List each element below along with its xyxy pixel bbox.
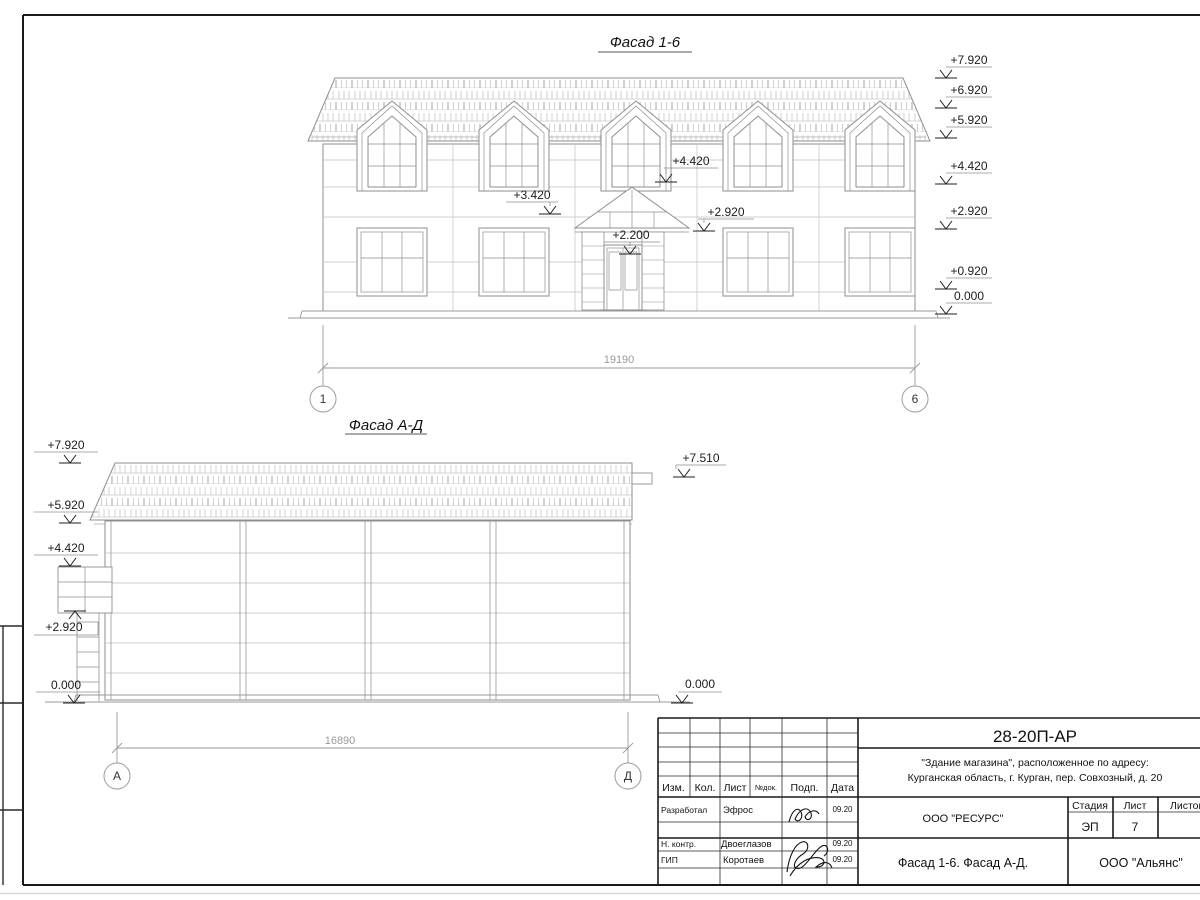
plinth-front [288,311,950,318]
portal-quoins-right [642,232,664,310]
org-customer: ООО "Альянс" [1099,856,1183,870]
elevation-mark: +0.920 [950,264,987,278]
sheets-label: Листов [1170,800,1200,812]
elevation-mark: +7.510 [682,451,719,465]
signature-scribble [789,809,819,822]
stage-value: ЭП [1081,820,1098,834]
col-header-data: Дата [831,782,854,794]
elevation-mark: 0.000 [685,677,715,691]
left-margin-boxes [0,626,23,885]
elevation-mark: +2.200 [612,228,649,242]
window [845,228,915,296]
axis-label: Д [624,769,632,783]
facade-1-6-drawing: Фасад 1-6 [288,34,950,318]
project-address-line1: "Здание магазина", расположенное по адре… [921,757,1148,769]
stage-label: Стадия [1072,800,1108,812]
roof-vent [632,473,652,484]
role-ncontrol: Н. контр. [661,839,696,849]
roof-side [90,463,632,520]
elevation-mark: +4.420 [47,541,84,555]
axis-label: 6 [912,392,919,406]
elevation-mark: +6.920 [950,83,987,97]
elevation-mark: +2.920 [950,204,987,218]
window [479,228,549,296]
facade-1-6-dimension: 19190 1 6 [310,325,928,412]
signature-scribble [787,842,832,876]
date-gip: 09.20 [832,855,853,864]
portal-quoins-left [582,232,604,310]
date-developer: 09.20 [832,805,853,814]
name-developer: Эфрос [723,805,753,816]
elevation-mark: +4.420 [672,154,709,168]
elevation-mark: +5.920 [47,498,84,512]
elevation-mark: +2.920 [707,205,744,219]
title-block: 28-20П-АР "Здание магазина", расположенн… [658,718,1200,885]
facade-a-d-title: Фасад А-Д [349,417,424,434]
elevation-mark: 0.000 [954,289,984,303]
col-header-kol: Кол. [695,782,716,794]
role-developer: Разработал [661,805,707,815]
dimension-label: 19190 [604,354,635,366]
axis-label: А [113,769,121,783]
doc-number: 28-20П-АР [993,727,1077,746]
sheet-value: 7 [1132,820,1139,834]
facade-a-d-drawing: Фасад А-Д [45,417,690,702]
col-header-ndok: №док. [755,783,777,792]
drawing-sheet: Фасад 1-6 [0,0,1200,900]
name-gip: Коротаев [723,855,764,866]
sheet-label: Лист [1124,800,1147,812]
elevation-mark: 0.000 [51,678,81,692]
name-ncontrol: Двоеглазов [721,839,772,850]
facade-a-d-dimension: 16890 А Д [104,712,641,789]
axis-label: 1 [320,392,327,406]
elevation-mark: +3.420 [513,188,550,202]
facade-1-6-title: Фасад 1-6 [610,34,681,51]
elevation-mark: +7.920 [47,438,84,452]
window [723,228,793,296]
elevation-mark: +7.920 [950,53,987,67]
org-designer: ООО "РЕСУРС" [923,813,1004,825]
drawing-title: Фасад 1-6. Фасад А-Д. [898,856,1028,870]
dimension-label: 16890 [325,735,356,747]
elevation-mark: +5.920 [950,113,987,127]
col-header-podp: Подп. [791,782,819,794]
elevation-mark: +2.920 [45,620,82,634]
elevation-mark: +4.420 [950,159,987,173]
col-header-izm: Изм. [662,782,685,794]
date-ncontrol: 09.20 [832,839,853,848]
facade-a-d-elevation-marks-right: +7.510 0.000 [671,451,726,703]
window [357,228,427,296]
project-address-line2: Курганская область, г. Курган, пер. Совх… [908,772,1163,784]
role-gip: ГИП [661,855,678,865]
col-header-list: Лист [724,782,747,794]
facade-1-6-elevation-marks-right: +7.920 +6.920 +5.920 +4.420 +2.920 +0.92… [935,53,992,314]
